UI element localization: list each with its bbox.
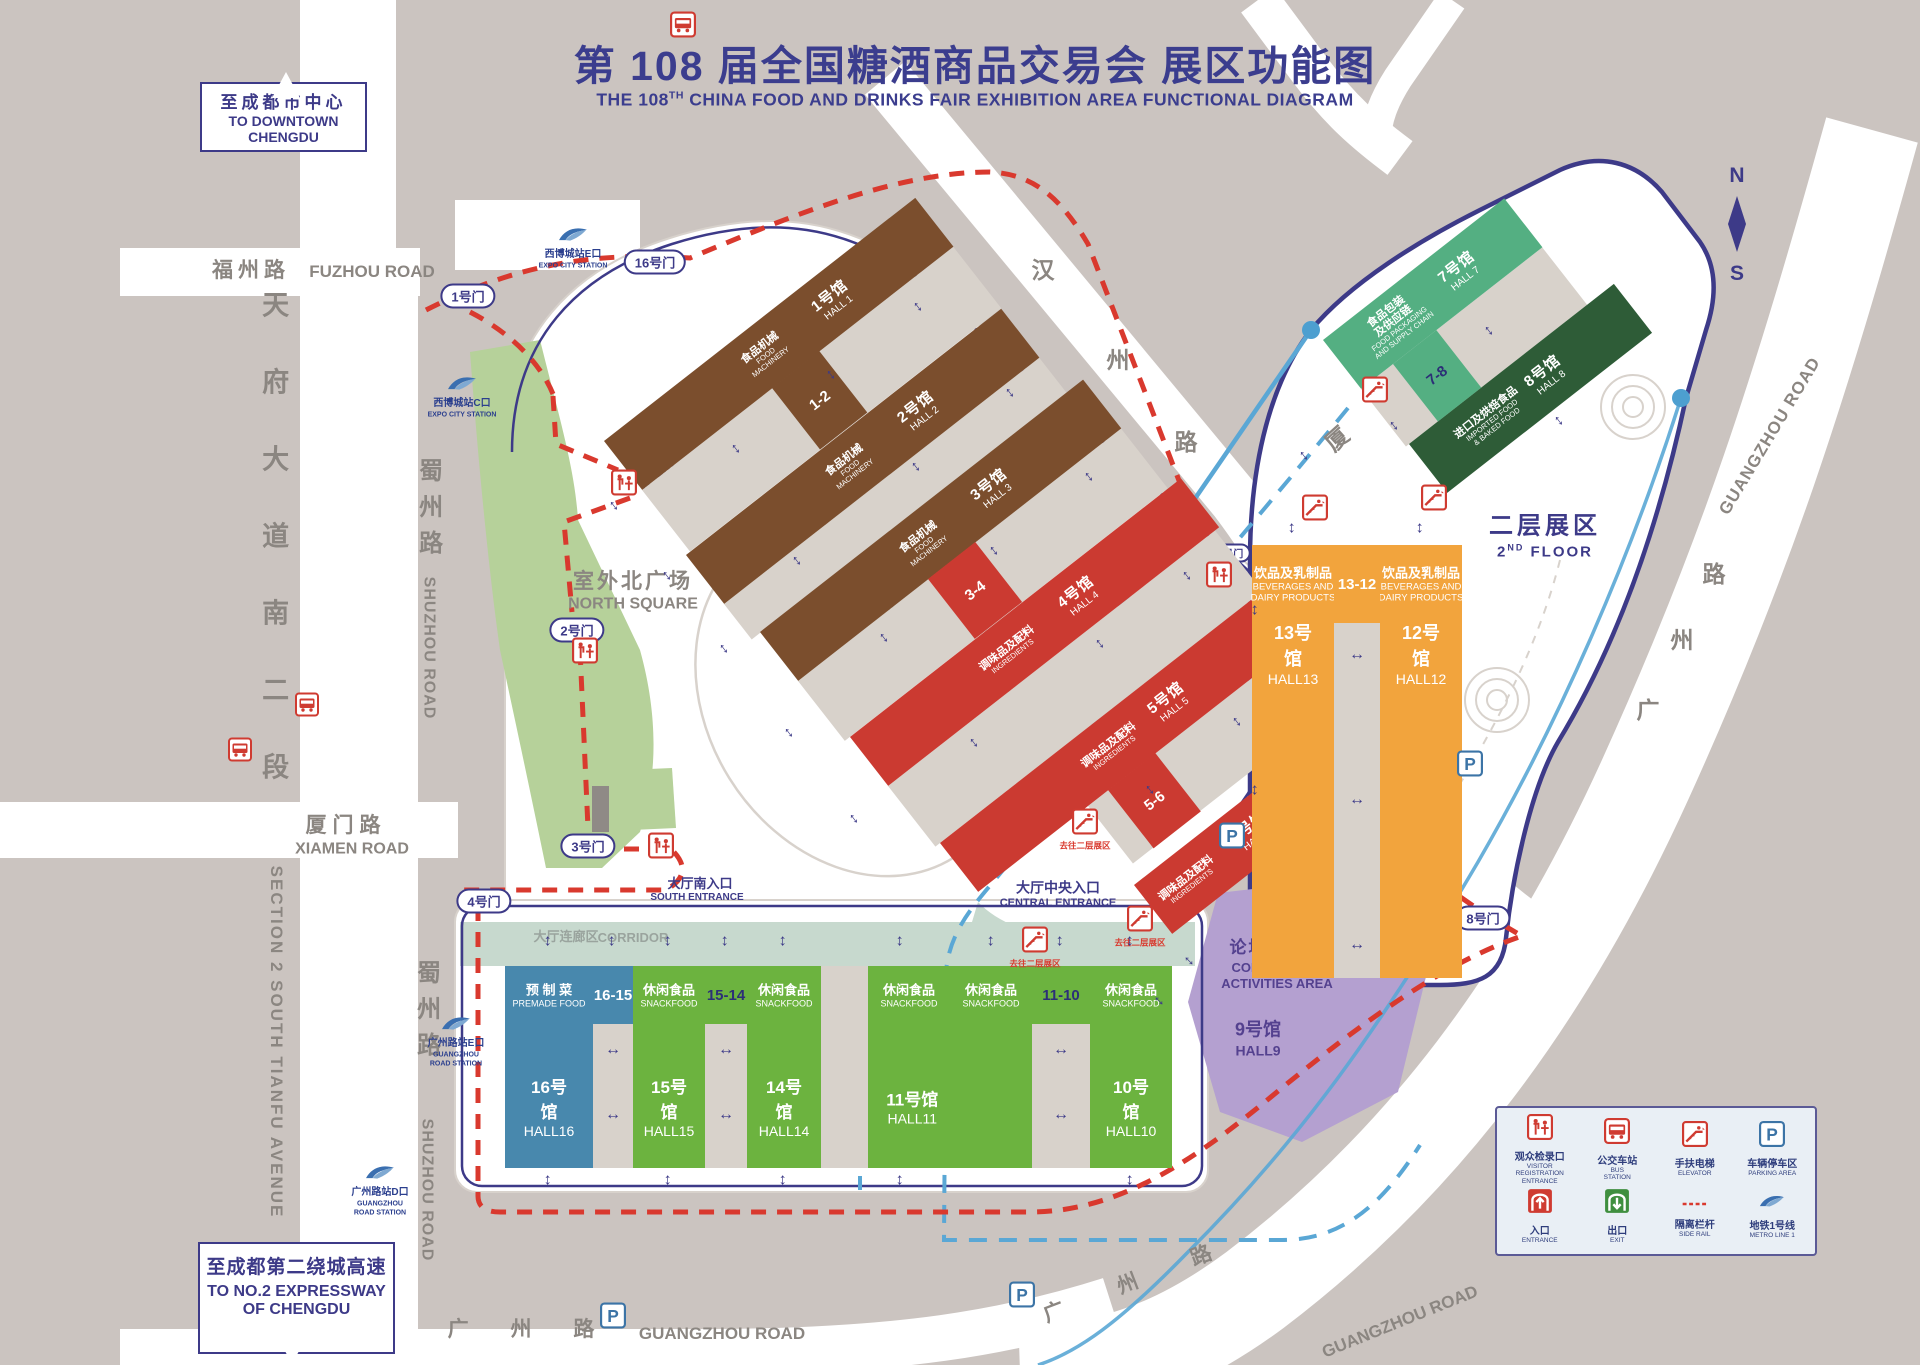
metro-station-label-cn: 广州路站D口 [351, 1188, 408, 1199]
direction-arrow: ↔ [983, 933, 1001, 949]
svg-text:P: P [607, 1306, 619, 1326]
escalator-to-2f-icon [1127, 906, 1153, 937]
parking-icon: P [1747, 1121, 1797, 1152]
direction-arrow: ↔ [660, 1172, 678, 1188]
legend-label-en: VISITOR REGISTRATION ENTRANCE [1515, 1163, 1565, 1185]
central-entrance-label-en: CENTRAL ENTRANCE [1000, 898, 1117, 910]
metro-station-icon [365, 1164, 395, 1186]
direction-arrow: ↔ [1122, 933, 1140, 949]
metro-station-icon [441, 1015, 471, 1037]
metro-station-label-cn: 西博城站C口 [433, 399, 490, 410]
direction-arrow: ↔ [1122, 1172, 1140, 1188]
direction-arrow: ↔ [775, 1172, 793, 1188]
connector-label: 1-2 [806, 387, 834, 414]
hall-1-category: 食品机械FOOD MACHINERY [738, 330, 791, 380]
second-floor-label-en: 2ND FLOOR [1497, 544, 1593, 561]
direction-arrow: ↔ [1247, 602, 1265, 618]
gate-4号门: 4号门 [456, 889, 511, 914]
connector-label: 11-10 [1042, 987, 1080, 1004]
shuzhou-road-upper-en: SHUZHOU ROAD [420, 577, 437, 720]
direction-arrow: ↔ [718, 1041, 734, 1059]
direction-arrow: ↔ [660, 933, 678, 949]
hall-11-name: 11号馆 HALL11 [886, 1086, 938, 1127]
hall-6-category: 调味品及配料INGREDIENTS [1156, 853, 1221, 910]
connector-label: 3-4 [961, 577, 989, 604]
legend-label-cn: 地铁1号线 [1749, 1217, 1795, 1232]
hall-2-category: 食品机械FOOD MACHINERY [823, 442, 876, 492]
compass-icon [1728, 196, 1746, 252]
bus-icon [1597, 1118, 1637, 1149]
direction-arrow: ↔ [1349, 791, 1365, 809]
bus-stop-icon [228, 738, 252, 767]
sign-text: TO NO.2 EXPRESSWAY [200, 1283, 393, 1301]
metro-station-label-en: GUANGZHOU [357, 1200, 403, 1207]
hall-2-name: 2号馆HALL 2 [895, 388, 945, 435]
connector-label: 7-8 [1423, 362, 1451, 389]
direction-arrow: ↔ [775, 933, 793, 949]
legend-item-visitor: 观众检录口 VISITOR REGISTRATION ENTRANCE [1515, 1114, 1565, 1185]
direction-arrow: ↔ [1053, 1106, 1069, 1124]
bus-stop-icon [295, 693, 319, 722]
metro-station-label-en: EXPO CITY STATION [428, 411, 497, 418]
connector-11-10: 11-10 [1032, 966, 1090, 1024]
direction-arrow: ↔ [717, 933, 735, 949]
escalator-to-2f-icon [1022, 927, 1048, 958]
svg-text:P: P [1464, 754, 1476, 774]
hall-9-label-en: HALL9 [1235, 1044, 1280, 1059]
guangzhou-south-label-cn: 广 州 路 [448, 1319, 613, 1341]
legend-label-en: EXIT [1604, 1237, 1630, 1244]
south-entrance-label-en: SOUTH ENTRANCE [650, 893, 743, 904]
hall-12: 饮品及乳制品 BEVERAGES AND DAIRY PRODUCTS 12号馆… [1380, 545, 1462, 978]
hall-4-name: 4号馆HALL 4 [1055, 573, 1105, 620]
sign-arrow-down [278, 1338, 306, 1365]
direction-arrow: ↔ [1349, 936, 1365, 954]
sign-arrow-up [272, 58, 300, 98]
hall-10-name: 10号馆 HALL10 [1106, 1073, 1157, 1139]
escalator-icon [1362, 377, 1388, 408]
metro-station-label-cn: 广州路站E口 [428, 1039, 485, 1050]
svg-text:P: P [1766, 1125, 1778, 1145]
legend-label-en: BUS STATION [1597, 1167, 1637, 1182]
connector-label: 15-14 [707, 987, 745, 1004]
legend-label-en: SIDE RAIL [1675, 1231, 1715, 1238]
legend-label-cn: 隔离栏杆 [1675, 1216, 1715, 1231]
hall-9-label-cn: 9号馆 [1235, 1021, 1281, 1040]
sign-text: OF CHENGDU [200, 1301, 393, 1319]
hall-4-category: 调味品及配料INGREDIENTS [977, 624, 1042, 681]
road-branch-2 [1376, 0, 1452, 142]
metro-station-label-cn: 西博城站E口 [545, 250, 602, 261]
legend-item-park: P 车辆停车区 PARKING AREA [1747, 1121, 1797, 1177]
escalator-icon [1302, 495, 1328, 526]
central-entrance-label-cn: 大厅中央入口 [1016, 881, 1100, 896]
guangzhou-east-char-2: 路 [1703, 562, 1726, 586]
gate-3号门: 3号门 [560, 834, 615, 859]
direction-arrow: ↔ [605, 1041, 621, 1059]
gate-16号门: 16号门 [624, 250, 686, 275]
connector-13-12: 13-12 [1334, 545, 1380, 623]
direction-arrow: ↔ [605, 1106, 621, 1124]
parking-icon: P [1219, 823, 1245, 854]
entrance-icon [1522, 1188, 1558, 1219]
hall-16-name: 16号馆 HALL16 [524, 1073, 575, 1139]
hall-5-name: 5号馆HALL 5 [1145, 679, 1195, 726]
legend-label-cn: 公交车站 [1597, 1152, 1637, 1167]
hall-13-name: 13号馆 HALL13 [1268, 619, 1319, 687]
sign-text: TO DOWNTOWN [202, 113, 365, 129]
exhibition-map: 第 108 届全国糖酒商品交易会 展区功能图 THE 108TH CHINA F… [0, 0, 1920, 1365]
compass-s-label: S [1730, 263, 1744, 285]
direction-arrow: ↔ [540, 933, 558, 949]
side-rail-icon [1675, 1195, 1715, 1213]
escalator-icon [1421, 485, 1447, 516]
legend-item-entr: 入口 ENTRANCE [1522, 1188, 1558, 1244]
legend-label-en: PARKING AREA [1747, 1170, 1797, 1177]
parking-icon: P [1009, 1282, 1035, 1313]
direction-arrow: ↔ [1349, 646, 1365, 664]
metro-icon [1749, 1194, 1795, 1214]
hall-8-name: 8号馆HALL 8 [1522, 353, 1572, 400]
metro-station-label-en: ROAD STATION [430, 1060, 482, 1067]
gate-8号门: 8号门 [1455, 906, 1510, 931]
escalator-note: 去往二层展区 [1059, 842, 1110, 851]
visitor-registration-icon [572, 638, 598, 669]
tianfu-avenue-road [300, 0, 396, 1365]
hanzhou-road-char-0: 汉 [1032, 258, 1055, 282]
legend-item-metro: 地铁1号线 METRO LINE 1 [1749, 1194, 1795, 1239]
legend-item-bus: 公交车站 BUS STATION [1597, 1118, 1637, 1182]
fuzhou-road-label-cn: 福州路 [212, 260, 290, 282]
direction-arrow: ↔ [540, 1172, 558, 1188]
direction-arrow: ↔ [1412, 520, 1430, 536]
tianfu-avenue-label-cn: 天府大道南二段 [259, 291, 287, 830]
to-expressway-sign: 至成都第二绕城高速 TO NO.2 EXPRESSWAY OF CHENGDU [198, 1242, 395, 1354]
direction-arrow: ↔ [604, 933, 622, 949]
escalator-note: 去往二层展区 [1009, 960, 1060, 969]
south-entrance-label-cn: 大厅南入口 [667, 877, 732, 891]
legend: 观众检录口 VISITOR REGISTRATION ENTRANCE 公交车站… [1495, 1106, 1817, 1256]
direction-arrow: ↔ [1284, 520, 1302, 536]
sign-text: CHENGDU [202, 129, 365, 145]
legend-label-cn: 车辆停车区 [1747, 1155, 1797, 1170]
legend-label-en: ENTRANCE [1522, 1237, 1558, 1244]
connector-15-14: 15-14 [705, 966, 747, 1024]
legend-label-cn: 观众检录口 [1515, 1148, 1565, 1163]
hall-7-name: 7号馆HALL 7 [1436, 249, 1486, 296]
bus-stop-icon [670, 12, 696, 43]
legend-label-cn: 手扶电梯 [1675, 1155, 1715, 1170]
metro-station-icon [447, 375, 477, 397]
legend-item-rail: 隔离栏杆 SIDE RAIL [1675, 1195, 1715, 1238]
parking-icon: P [1457, 751, 1483, 782]
xiamen-road-label-en: XIAMEN ROAD [295, 842, 409, 859]
metro-station-icon [558, 226, 588, 248]
direction-arrow: ↔ [718, 1106, 734, 1124]
direction-arrow: ↔ [1053, 1041, 1069, 1059]
building [592, 786, 609, 832]
visitor-registration-icon [1206, 562, 1232, 593]
sign-text: 至成都第二绕城高速 [200, 1252, 393, 1279]
legend-item-exit: 出口 EXIT [1604, 1188, 1630, 1244]
legend-label-cn: 入口 [1522, 1222, 1558, 1237]
hanzhou-road-char-1: 州 [1107, 348, 1130, 372]
hall-3-category: 食品机械FOOD MACHINERY [897, 519, 950, 569]
connector-label: 16-15 [594, 987, 632, 1004]
fuzhou-road-label-en: FUZHOU ROAD [309, 263, 435, 281]
direction-arrow: ↔ [1052, 933, 1070, 949]
escalator-to-2f-icon [1072, 809, 1098, 840]
north-square-label-en: NORTH SQUARE [568, 597, 698, 614]
connector-16-15: 16-15 [593, 966, 633, 1024]
visitor-registration-icon [648, 833, 674, 864]
hall-3-name: 3号馆HALL 3 [968, 466, 1018, 513]
guangzhou-east-char-0: 广 [1637, 698, 1660, 722]
shuzhou-road-lower-en: SHUZHOU ROAD [418, 1119, 435, 1262]
direction-arrow: ↔ [1247, 782, 1265, 798]
metro-station-label-en: ROAD STATION [354, 1209, 406, 1216]
guangzhou-south-label-en: GUANGZHOU ROAD [639, 1325, 805, 1343]
hall-15-name: 15号馆 HALL15 [644, 1073, 695, 1139]
to-downtown-sign: 至成都市中心 TO DOWNTOWN CHENGDU [200, 82, 367, 152]
hall-11: 休闲食品 SNACKFOOD 休闲食品 SNACKFOOD 11号馆 HALL1… [868, 966, 1032, 1168]
metro-station-label-en: EXPO CITY STATION [539, 262, 608, 269]
gate-1号门: 1号门 [440, 284, 495, 309]
hanzhou-road-char-2: 路 [1175, 430, 1198, 454]
page-title-en: THE 108TH CHINA FOOD AND DRINKS FAIR EXH… [596, 90, 1353, 111]
svg-text:P: P [1226, 826, 1238, 846]
direction-arrow: ↔ [892, 1172, 910, 1188]
compass-n-label: N [1729, 165, 1744, 187]
visitor-registration-icon [1515, 1114, 1565, 1145]
legend-label-en: METRO LINE 1 [1749, 1232, 1795, 1239]
hall-1-name: 1号馆HALL 1 [809, 277, 859, 324]
legend-label-cn: 出口 [1604, 1222, 1630, 1237]
conference-area-label-en2: ACTIVITIES AREA [1221, 977, 1332, 991]
escalator-icon [1675, 1121, 1715, 1152]
hall-14-name: 14号馆 HALL14 [759, 1073, 810, 1139]
legend-label-en: ELEVATOR [1675, 1170, 1715, 1177]
legend-item-escal: 手扶电梯 ELEVATOR [1675, 1121, 1715, 1177]
second-floor-label-cn: 二层展区 [1489, 513, 1601, 538]
hall-12-name: 12号馆 HALL12 [1396, 619, 1447, 687]
metro-station-label-en: GUANGZHOU [433, 1051, 479, 1058]
direction-arrow: ↔ [892, 933, 910, 949]
guangzhou-east-char-1: 州 [1671, 628, 1694, 652]
svg-text:P: P [1016, 1285, 1028, 1305]
tianfu-avenue-label-en: SECTION 2 SOUTH TIANFU AVENUE [267, 866, 285, 1219]
connector-label: 13-12 [1338, 576, 1376, 593]
xiamen-road-label-cn: 厦门路 [306, 815, 387, 837]
exit-icon [1604, 1188, 1630, 1219]
parking-icon: P [600, 1303, 626, 1334]
shuzhou-road-upper-cn: 蜀州路 [415, 458, 440, 566]
